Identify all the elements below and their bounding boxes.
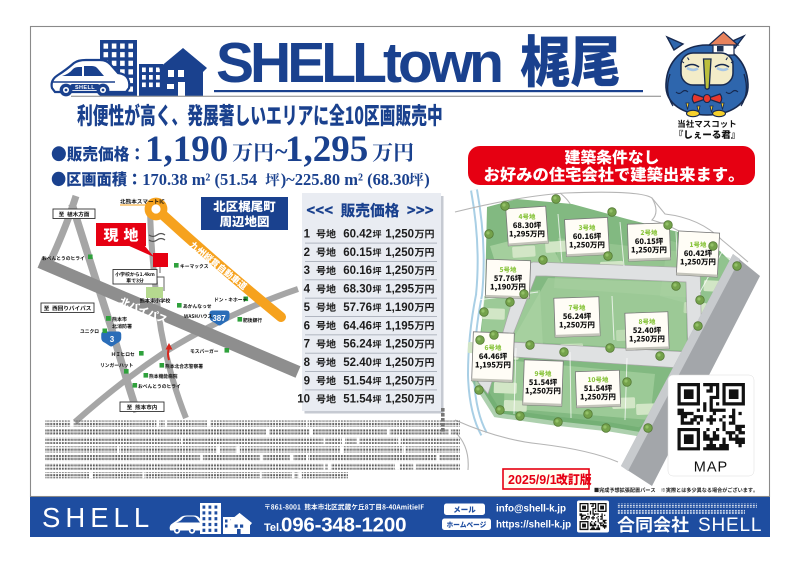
svg-text:2025/9/1: 2025/9/1 <box>508 473 557 487</box>
svg-text:1,250: 1,250 <box>385 394 414 406</box>
svg-text:170.38 m² (51.54: 170.38 m² (51.54 <box>142 170 257 189</box>
svg-text:60.16: 60.16 <box>343 265 372 277</box>
svg-text:1,250: 1,250 <box>385 339 414 351</box>
svg-text:64.46: 64.46 <box>343 320 372 332</box>
svg-text:SHELL: SHELL <box>698 515 762 536</box>
svg-text:60.42: 60.42 <box>343 229 372 241</box>
svg-text:1: 1 <box>304 229 311 241</box>
svg-text:5: 5 <box>304 302 311 314</box>
svg-text:MAP: MAP <box>694 460 728 476</box>
svg-text:1,250: 1,250 <box>385 265 414 277</box>
svg-text:1,295: 1,295 <box>285 129 368 170</box>
svg-text:1,250: 1,250 <box>385 247 414 259</box>
svg-text:2: 2 <box>304 247 310 259</box>
svg-text:387: 387 <box>212 314 226 323</box>
svg-text:52.40: 52.40 <box>343 357 372 369</box>
svg-text:9: 9 <box>304 375 310 387</box>
svg-text:): ) <box>424 170 430 189</box>
svg-text:1,295: 1,295 <box>385 284 414 296</box>
svg-text:4: 4 <box>304 284 311 296</box>
svg-text:3: 3 <box>304 265 310 277</box>
svg-text:SHELLtown: SHELLtown <box>216 31 504 95</box>
svg-text:1,250: 1,250 <box>385 357 414 369</box>
svg-text:7: 7 <box>304 339 310 351</box>
svg-text:3: 3 <box>110 335 115 344</box>
svg-text:68.30: 68.30 <box>343 284 372 296</box>
svg-text:Tel.: Tel. <box>264 522 282 534</box>
svg-text:096-348-1200: 096-348-1200 <box>281 514 406 537</box>
svg-text:https://shell-k.jp: https://shell-k.jp <box>496 520 571 531</box>
svg-text:SHELL: SHELL <box>75 85 95 91</box>
svg-text:info@shell-k.jp: info@shell-k.jp <box>496 504 566 515</box>
svg-text:56.24: 56.24 <box>343 339 372 351</box>
svg-text:51.54: 51.54 <box>343 375 372 387</box>
svg-text:1,195: 1,195 <box>385 320 414 332</box>
svg-text:8: 8 <box>304 357 311 369</box>
svg-text:6: 6 <box>304 320 310 332</box>
svg-text:1,250: 1,250 <box>385 375 414 387</box>
svg-text:SHELL: SHELL <box>42 502 154 533</box>
svg-text:1,190: 1,190 <box>385 302 414 314</box>
svg-text:57.76: 57.76 <box>343 302 372 314</box>
svg-text:51.54: 51.54 <box>343 394 372 406</box>
svg-text:60.15: 60.15 <box>343 247 372 259</box>
svg-text:1,250: 1,250 <box>385 229 414 241</box>
svg-text:10: 10 <box>297 394 310 406</box>
svg-text:1,190: 1,190 <box>145 129 228 170</box>
svg-text:)~225.80 m² (68.30: )~225.80 m² (68.30 <box>281 170 410 189</box>
